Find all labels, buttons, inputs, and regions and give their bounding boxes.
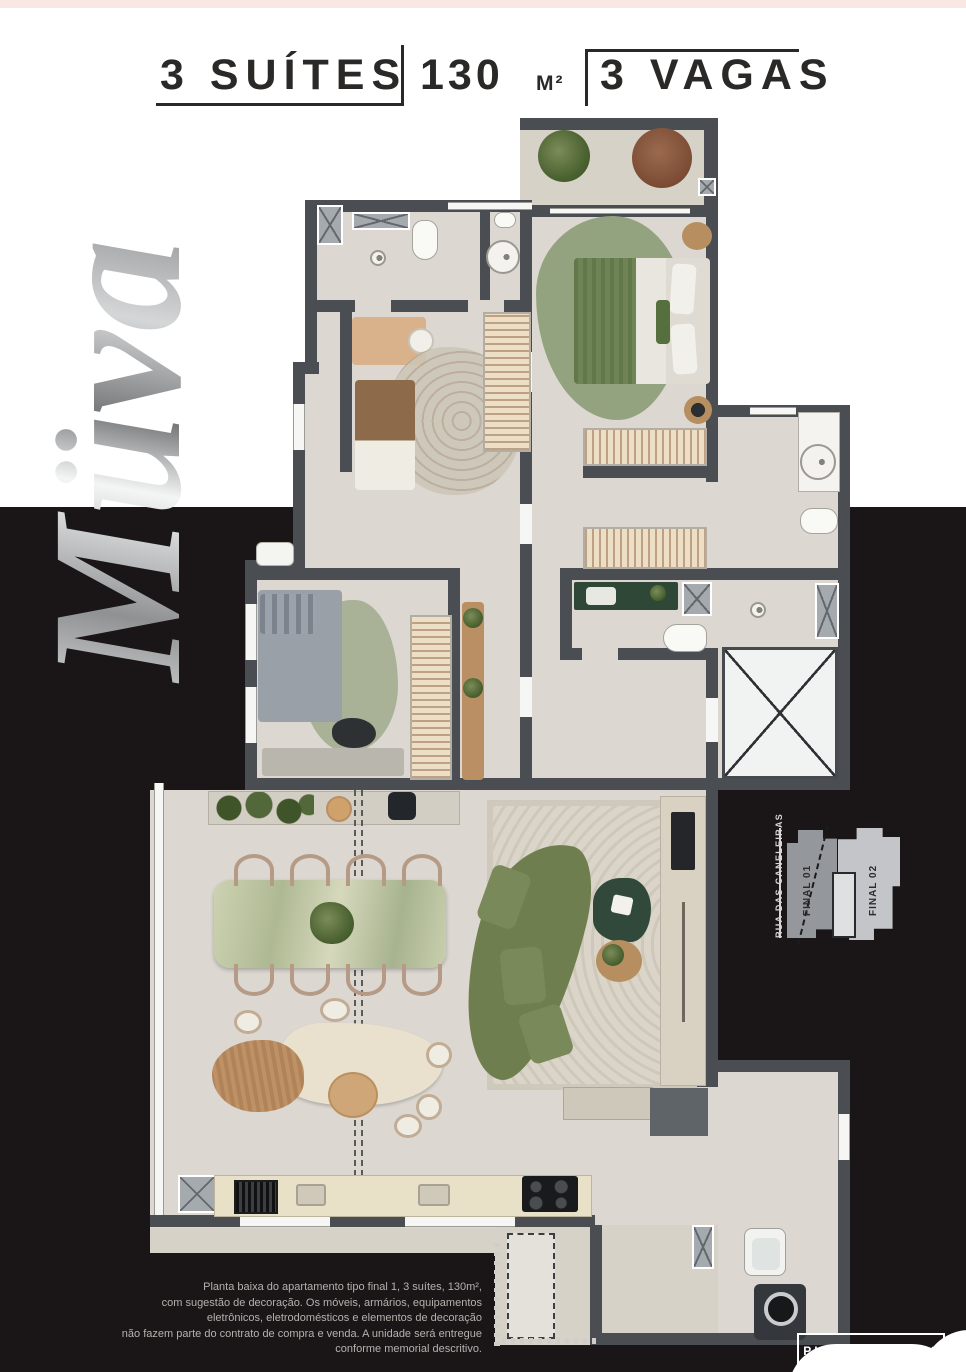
lavabo-sink: [586, 587, 616, 605]
wall: [838, 1060, 850, 1345]
wall: [704, 118, 718, 217]
disclaimer-line: eletrônicos, eletrodomésticos e elemento…: [62, 1311, 482, 1327]
wall: [305, 200, 317, 370]
door-gap: [706, 698, 718, 742]
door-gap: [468, 300, 504, 312]
toilet: [800, 508, 838, 534]
dining-chair: [346, 964, 386, 996]
balcony-counter-dark: [650, 1088, 708, 1136]
round-basin: [486, 240, 520, 274]
toilet: [412, 220, 438, 260]
office-bed: [355, 380, 415, 490]
column: [682, 582, 712, 616]
disclaimer-line: não fazem parte do contrato de compra e …: [62, 1327, 482, 1343]
lavabo-plant: [650, 585, 666, 601]
bedroom-wardrobe: [410, 615, 452, 780]
header-parking: 3 VAGAS: [600, 51, 835, 100]
nightstand: [684, 396, 712, 424]
kitchen-sink: [418, 1184, 450, 1206]
round-lounge-chair: [632, 128, 692, 188]
island-counter-wood: [212, 1040, 304, 1112]
cooktop: [522, 1176, 578, 1212]
service-door: [838, 1114, 850, 1160]
wall: [590, 1225, 602, 1345]
shower-drain: [750, 602, 766, 618]
column: [178, 1175, 216, 1213]
dining-chair: [402, 964, 442, 996]
dining-chair: [290, 854, 330, 886]
disclaimer-line: com sugestão de decoração. Os móveis, ar…: [62, 1296, 482, 1312]
flyer-page: 3 SUÍTES 130 M² 3 VAGAS Müva: [0, 0, 966, 1372]
master-pillow: [670, 323, 697, 375]
dining-chair: [290, 964, 330, 996]
disclaimer: Planta baixa do apartamento tipo final 1…: [62, 1280, 482, 1358]
bath-window: [448, 202, 532, 210]
column: [698, 178, 716, 196]
kitchen-sink: [296, 1184, 326, 1206]
wall: [293, 362, 305, 560]
stool: [426, 1042, 452, 1068]
wall: [718, 1060, 850, 1072]
door-gap: [520, 677, 532, 717]
bath3-sink: [800, 444, 836, 480]
wall: [245, 778, 718, 790]
master-bed-duvet: [574, 258, 636, 384]
header-suites: 3 SUÍTES: [160, 51, 407, 100]
railing-hatch: [502, 1338, 598, 1344]
table-centerpiece: [310, 902, 354, 944]
dining-chair: [234, 964, 274, 996]
tv-screen: [671, 812, 695, 870]
serving-board: [328, 1072, 378, 1118]
dining-chair: [346, 854, 386, 886]
laundry-sink-basin: [752, 1238, 780, 1270]
disclaimer-line: Planta baixa do apartamento tipo final 1…: [62, 1280, 482, 1296]
key-plan: RUA DAS CANELEIRAS FINAL 01 FINAL 02: [750, 812, 910, 952]
master-pillow: [669, 263, 696, 315]
console-plant: [463, 678, 483, 698]
bedroom-plaid-pillow: [260, 594, 316, 634]
stool: [394, 1114, 422, 1138]
wall: [560, 568, 718, 580]
bedroom-chair: [332, 718, 376, 748]
floor-plan: [150, 112, 850, 1353]
duct-shaft: [352, 212, 410, 230]
disclaimer-line: conforme memorial descritivo.: [62, 1342, 482, 1358]
planter-greens: [214, 792, 314, 824]
terrace-plant: [538, 130, 590, 182]
door-gap: [582, 648, 618, 660]
final-01-label: FINAL 01: [802, 865, 813, 916]
living-west-parapet: [154, 783, 164, 1216]
closet-wardrobe: [583, 527, 707, 569]
wall: [706, 790, 718, 1087]
column: [317, 205, 343, 245]
bedroom-window: [245, 687, 257, 743]
bedroom-window: [245, 604, 257, 660]
toilet: [494, 212, 516, 228]
header-area-value: 130: [420, 51, 504, 100]
stool: [416, 1094, 442, 1120]
bath3-window: [750, 407, 796, 415]
header-divider-suites-h: [156, 103, 404, 106]
side-table-plant: [602, 944, 624, 966]
coffee-table-tray: [610, 894, 633, 916]
reading-chair: [326, 796, 352, 822]
dining-chair: [402, 854, 442, 886]
door-gap: [355, 300, 391, 312]
bedroom-desk: [262, 748, 404, 776]
column: [815, 583, 839, 639]
header-area-unit: M²: [536, 72, 565, 96]
master-wardrobe: [583, 428, 707, 466]
stool: [234, 1010, 262, 1034]
ac-unit: [256, 542, 294, 566]
wall: [245, 560, 257, 790]
wall: [245, 568, 460, 580]
toilet: [663, 624, 707, 652]
dining-chair: [234, 854, 274, 886]
door-gap: [520, 504, 532, 544]
keyplan-core: [832, 872, 856, 938]
final-02-label: FINAL 02: [868, 865, 879, 916]
grill: [234, 1180, 278, 1214]
speaker: [388, 792, 416, 820]
wall: [583, 466, 718, 478]
column: [692, 1225, 714, 1269]
elevator-shaft: [722, 647, 838, 779]
wall: [718, 778, 850, 790]
shower-drain: [370, 250, 386, 266]
office-wardrobe: [483, 312, 531, 452]
header-divider-vagas-v: [585, 49, 588, 106]
master-window: [550, 208, 690, 214]
street-line: [779, 828, 781, 938]
corridor-window: [293, 404, 305, 450]
wall: [718, 568, 838, 580]
cabinet-handle: [682, 902, 685, 1022]
wall: [340, 312, 352, 472]
railing-hatch: [494, 1238, 500, 1346]
future-equipment-area: [507, 1233, 555, 1339]
nightstand: [682, 222, 712, 250]
balcony-credenza: [563, 1087, 653, 1120]
header: 3 SUÍTES 130 M² 3 VAGAS: [0, 0, 966, 115]
master-accent-pillow: [656, 300, 670, 344]
wall: [520, 118, 716, 130]
console-plant: [463, 608, 483, 628]
wall: [838, 580, 850, 790]
washer-drum: [764, 1292, 798, 1326]
sofa-cushion: [499, 946, 547, 1006]
stool: [320, 998, 350, 1022]
header-divider-suites-v: [401, 45, 404, 106]
